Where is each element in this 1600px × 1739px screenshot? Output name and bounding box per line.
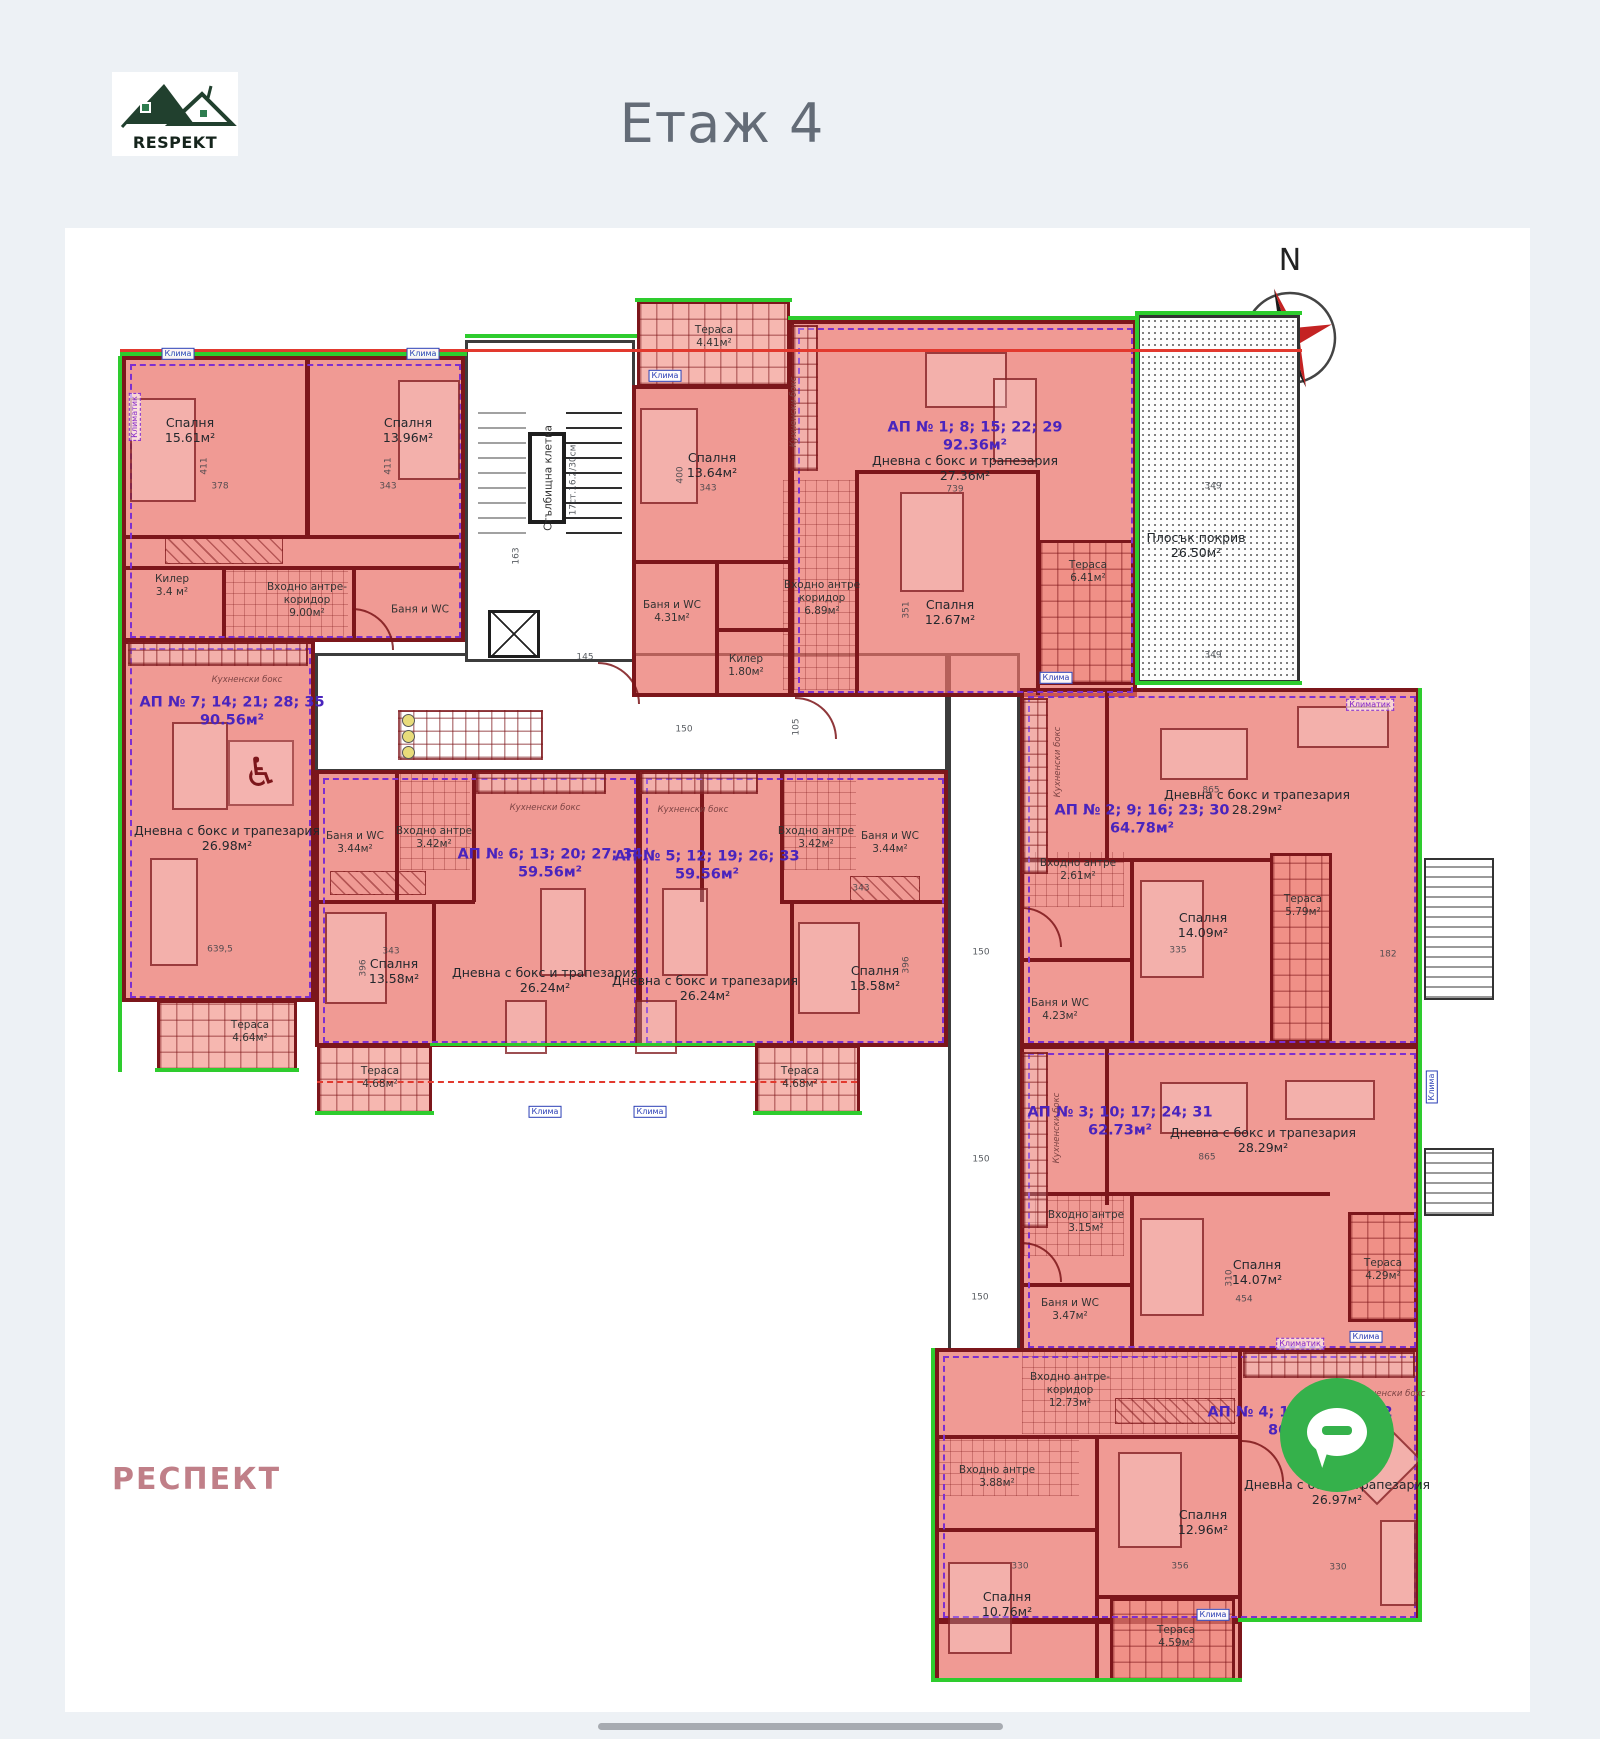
room-label: Входно антре 3.15м² [1048, 1209, 1124, 1235]
room-label: Дневна с бокс и трапезария 26.24м² [452, 965, 638, 996]
terrace-ap7 [157, 1000, 297, 1072]
dimension-label: 330 [1329, 1563, 1346, 1574]
room-label: Тераса 4.68м² [781, 1065, 819, 1091]
room-label: Кухненски бокс [1053, 727, 1063, 798]
room-label: Спалня 14.07м² [1232, 1257, 1282, 1288]
room-label: Баня и WC 3.44м² [326, 830, 384, 856]
dimension-label: 739 [946, 485, 963, 496]
room-label: Входно антре 2.61м² [1040, 857, 1116, 883]
dimension-label: 163 [512, 547, 523, 564]
hvac-label: Климатик [129, 393, 141, 441]
room-label: Кухненски бокс [212, 675, 283, 685]
room-label: Спалня 10.76м² [982, 1589, 1032, 1620]
dimension-label: 182 [1379, 950, 1396, 961]
hvac-label: Клима [529, 1106, 562, 1118]
area-label: Стълбищна клетка [543, 425, 556, 531]
apartment-label: АП № 6; 13; 20; 27; 34 59.56м² [457, 846, 642, 881]
room-label: Кухненски бокс [510, 803, 581, 813]
dimension-label: 865 [1202, 786, 1219, 797]
dimension-label: 411 [384, 457, 395, 474]
room-label: Входно антре 3.42м² [778, 825, 854, 851]
room-label: Килер 1.80м² [728, 653, 764, 679]
hvac-label: Климатик [1346, 699, 1394, 711]
room-label: Баня и WC 4.23м² [1031, 997, 1089, 1023]
room-label: Дневна с бокс и трапезария 26.24м² [612, 973, 798, 1004]
room-label: Входно антре- коридор 9.00м² [267, 581, 347, 619]
dimension-label: 378 [211, 482, 228, 493]
dimension-label: 351 [902, 601, 913, 618]
machine-room-detail [398, 710, 543, 760]
room-label: Баня и WC [391, 604, 449, 617]
room-label: Спалня 15.61м² [165, 415, 215, 446]
dimension-label: 145 [576, 653, 593, 664]
room-label: Тераса 4.29м² [1364, 1257, 1402, 1283]
room-label: Тераса 5.79м² [1284, 893, 1322, 919]
chat-bubble-tail [1307, 1442, 1329, 1468]
dimension-label: 105 [792, 718, 803, 735]
corridor-vertical [948, 653, 1020, 1352]
room-label: Спалня 12.96м² [1178, 1507, 1228, 1538]
dimension-label: 411 [200, 457, 211, 474]
dimension-label: 356 [1171, 1562, 1188, 1573]
area-label: Плосък покрив 26.50м² [1146, 530, 1245, 561]
hvac-label: Клима [162, 348, 195, 360]
dining-table-shape [662, 888, 708, 976]
room-label: Спалня 14.09м² [1178, 910, 1228, 941]
room-label: Кухненски бокс [789, 377, 799, 448]
sofa-shape [1285, 1080, 1375, 1120]
hvac-label: Клима [1426, 1071, 1438, 1104]
dimension-label: 343 [852, 884, 869, 895]
svg-text:N: N [1279, 246, 1301, 278]
dimension-label: 454 [1235, 1295, 1252, 1306]
room-label: Спалня 13.64м² [687, 450, 737, 481]
room-label: Кухненски бокс [658, 805, 729, 815]
kitchen-counter-shape [640, 772, 758, 794]
page: RESPEKT Етаж 4 N [0, 0, 1600, 1739]
dimension-label: 150 [972, 948, 989, 959]
dimension-label: 400 [676, 466, 687, 483]
hvac-label: Клима [1197, 1609, 1230, 1621]
watermark: РЕСПЕКТ [112, 1462, 281, 1497]
dining-table-shape [540, 888, 586, 976]
room-label: Баня и WC 4.31м² [643, 599, 701, 625]
dining-table-shape [172, 722, 228, 810]
dimension-label: 396 [359, 959, 370, 976]
dimension-label: 150 [971, 1293, 988, 1304]
hvac-label: Клима [407, 348, 440, 360]
elevator-shaft [488, 610, 540, 658]
room-label: Тераса 4.59м² [1157, 1624, 1195, 1650]
dimension-label: 639,5 [207, 945, 233, 956]
dimension-label: 349 [1204, 651, 1221, 662]
room-label: Дневна с бокс и трапезария 28.29м² [1164, 787, 1350, 818]
dimension-label: 343 [379, 482, 396, 493]
room-label: Дневна с бокс и трапезария 28.29м² [1170, 1125, 1356, 1156]
hvac-label: Клима [634, 1106, 667, 1118]
bed-shape [900, 492, 964, 592]
kitchen-counter-shape [476, 772, 606, 794]
room-label: Тераса 4.41м² [695, 324, 733, 350]
kitchen-counter-shape [128, 642, 308, 666]
sofa-shape [1297, 706, 1389, 748]
dimension-label: 865 [1198, 1153, 1215, 1164]
room-label: Тераса 4.68м² [361, 1065, 399, 1091]
room-label: Килер 3.4 м² [155, 573, 189, 599]
bed-shape [1118, 1452, 1182, 1548]
dimension-label: 396 [902, 956, 913, 973]
bed-shape [1140, 1218, 1204, 1316]
dimension-label: 335 [1169, 946, 1186, 957]
wardrobe-shape [330, 871, 426, 895]
dimension-label: 330 [1011, 1562, 1028, 1573]
room-label: Спалня 13.58м² [850, 963, 900, 994]
external-platform [1424, 858, 1494, 1000]
page-title: Етаж 4 [620, 92, 825, 155]
dimension-label: 343 [382, 947, 399, 958]
room-label: Дневна с бокс и трапезария 26.98м² [134, 823, 320, 854]
area-label: 17ст.16.2/30см [569, 445, 580, 516]
dimension-label: 349 [1204, 482, 1221, 493]
room-label: Баня и WC 3.44м² [861, 830, 919, 856]
dimension-label: 310 [1225, 1269, 1236, 1286]
wheelchair-accessible-icon: ♿ [228, 740, 294, 806]
room-label: Входно антре- коридор 12.73м² [1030, 1371, 1110, 1409]
terrace-ap2 [1270, 853, 1332, 1043]
dimension-label: 150 [675, 725, 692, 736]
apartment-label: АП № 1; 8; 15; 22; 29 92.36м² [888, 419, 1063, 454]
kitchen-counter-shape [1022, 698, 1048, 874]
apartment-label: АП № 7; 14; 21; 28; 35 90.56м² [139, 694, 324, 729]
room-label: Тераса 6.41м² [1069, 559, 1107, 585]
dimension-label: 343 [699, 484, 716, 495]
room-label: Дневна с бокс и трапезария 27.36м² [872, 453, 1058, 484]
room-label: Спалня 13.96м² [383, 415, 433, 446]
hvac-label: Клима [1040, 672, 1073, 684]
sofa-shape [1380, 1520, 1416, 1606]
room-label: Входно антре коридор 6.89м² [784, 579, 860, 617]
flat-roof-region [1137, 315, 1300, 683]
room-label: Спалня 12.67м² [925, 597, 975, 628]
chat-widget-button[interactable] [1280, 1378, 1394, 1492]
horizontal-scrollbar[interactable] [598, 1723, 1003, 1730]
external-platform [1424, 1148, 1494, 1216]
hvac-label: Клима [649, 370, 682, 382]
hvac-label: Клима [1350, 1331, 1383, 1343]
hvac-label: Климатик [1276, 1338, 1324, 1350]
wardrobe-shape [165, 538, 283, 564]
room-label: Тераса 4.64м² [231, 1019, 269, 1045]
dining-table-shape [1160, 728, 1248, 780]
room-label: Входно антре 3.42м² [396, 825, 472, 851]
room-label: Входно антре 3.88м² [959, 1464, 1035, 1490]
sofa-shape [150, 858, 198, 966]
apartment-6-region [315, 770, 640, 1047]
kitchen-counter-shape [1022, 1052, 1048, 1228]
room-label: Спалня 13.58м² [369, 956, 419, 987]
logo-text: RESPEKT [133, 133, 217, 152]
dimension-label: 150 [972, 1155, 989, 1166]
chat-bubble-mouth [1322, 1426, 1352, 1435]
room-label: Кухненски бокс [1052, 1093, 1062, 1164]
respekt-logo: RESPEKT [112, 72, 238, 156]
kitchen-counter-shape [1243, 1352, 1415, 1378]
room-label: Баня и WC 3.47м² [1041, 1297, 1099, 1323]
